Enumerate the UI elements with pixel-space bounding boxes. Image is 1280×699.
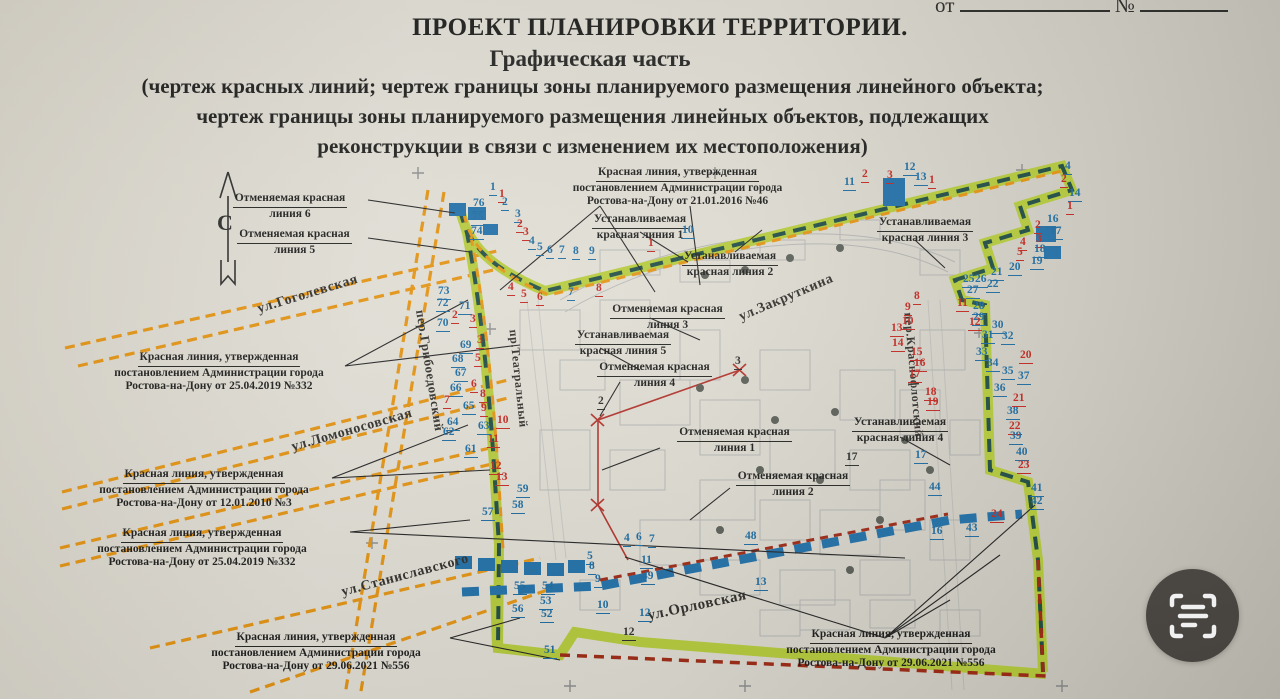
ref-point-number: 2 bbox=[1060, 174, 1068, 188]
ref-point-number: 22 bbox=[986, 279, 1000, 293]
ref-point-number: 65 bbox=[462, 401, 476, 415]
ref-point-number: 4 bbox=[623, 533, 631, 547]
ref-point-number: 9 bbox=[594, 574, 602, 588]
ref-point-number: 9 bbox=[904, 302, 912, 316]
ref-point-number: 10 bbox=[596, 600, 610, 614]
ref-point-number: 58 bbox=[511, 500, 525, 514]
ref-point-number: 3 bbox=[476, 335, 484, 349]
ref-point-number: 62 bbox=[442, 427, 456, 441]
ref-point-number: 6 bbox=[635, 532, 643, 546]
ref-point-number: 24 bbox=[990, 509, 1004, 523]
ref-point-number: 2 bbox=[451, 310, 459, 324]
ref-point-number: 21 bbox=[1012, 393, 1026, 407]
ref-point-number: 17 bbox=[908, 369, 922, 383]
ref-point-number: 12 bbox=[968, 317, 982, 331]
ref-point-number: 23 bbox=[1017, 460, 1031, 474]
ref-point-number: 2 bbox=[861, 169, 869, 183]
ref-point-number: 17 bbox=[845, 452, 859, 466]
ref-point-number: 9 bbox=[480, 403, 488, 417]
ref-point-number: 7 bbox=[648, 534, 656, 548]
ref-point-number: 16 bbox=[930, 526, 944, 540]
ref-point-number: 2 bbox=[501, 197, 509, 211]
ref-point-number: 48 bbox=[744, 531, 758, 545]
ref-point-number: 67 bbox=[454, 368, 468, 382]
ref-point-number: 5 bbox=[474, 353, 482, 367]
ref-point-number: 76 bbox=[472, 198, 486, 212]
ref-point-number: 43 bbox=[965, 523, 979, 537]
scan-button[interactable] bbox=[1146, 569, 1239, 662]
ref-point-number: 35 bbox=[1001, 366, 1015, 380]
ref-point-number: 39 bbox=[1009, 431, 1023, 445]
ref-point-number: 37 bbox=[1017, 371, 1031, 385]
ref-point-number: 13 bbox=[914, 172, 928, 186]
ref-point-number: 31 bbox=[981, 330, 995, 344]
ref-point-number: 8 bbox=[595, 283, 603, 297]
ref-point-number: 61 bbox=[464, 444, 478, 458]
ref-point-number: 10 bbox=[681, 225, 695, 239]
ref-point-number: 8 bbox=[588, 561, 596, 575]
ref-point-number: 32 bbox=[1001, 331, 1015, 345]
ref-number-layer: 7675747372712370693685676667658649631062… bbox=[0, 0, 1280, 699]
scan-text-icon bbox=[1167, 590, 1219, 642]
ref-point-number: 38 bbox=[1006, 406, 1020, 420]
ref-point-number: 2 bbox=[597, 396, 605, 410]
ref-point-number: 11 bbox=[640, 555, 653, 569]
ref-point-number: 12 bbox=[622, 627, 636, 641]
photo-of-planning-document: от № ПРОЕКТ ПЛАНИРОВКИ ТЕРРИТОРИИ. Графи… bbox=[0, 0, 1280, 699]
ref-point-number: 36 bbox=[993, 383, 1007, 397]
ref-point-number: 5 bbox=[520, 289, 528, 303]
ref-point-number: 20 bbox=[1008, 262, 1022, 276]
ref-point-number: 66 bbox=[449, 383, 463, 397]
ref-point-number: 1 bbox=[489, 182, 497, 196]
ref-point-number: 11 bbox=[956, 298, 969, 312]
ref-point-number: 4 bbox=[507, 282, 515, 296]
ref-point-number: 3 bbox=[734, 356, 742, 370]
ref-point-number: 13 bbox=[890, 323, 904, 337]
ref-point-number: 6 bbox=[546, 245, 554, 259]
ref-point-number: 9 bbox=[588, 246, 596, 260]
ref-point-number: 13 bbox=[495, 472, 509, 486]
ref-point-number: 55 bbox=[513, 581, 527, 595]
ref-point-number: 13 bbox=[754, 577, 768, 591]
ref-point-number: 11 bbox=[487, 434, 500, 448]
ref-point-number: 68 bbox=[451, 354, 465, 368]
ref-point-number: 3 bbox=[886, 170, 894, 184]
ref-point-number: 75 bbox=[471, 212, 485, 226]
ref-point-number: 10 bbox=[496, 415, 510, 429]
ref-point-number: 44 bbox=[928, 482, 942, 496]
ref-point-number: 7 bbox=[567, 287, 575, 301]
ref-point-number: 17 bbox=[914, 450, 928, 464]
ref-point-number: 20 bbox=[1019, 350, 1033, 364]
ref-point-number: 6 bbox=[470, 379, 478, 393]
ref-point-number: 8 bbox=[913, 291, 921, 305]
ref-point-number: 8 bbox=[479, 389, 487, 403]
ref-point-number: 57 bbox=[481, 507, 495, 521]
ref-point-number: 51 bbox=[543, 645, 557, 659]
ref-point-number: 49 bbox=[641, 571, 655, 585]
ref-point-number: 6 bbox=[536, 292, 544, 306]
ref-point-number: 27 bbox=[966, 285, 980, 299]
ref-point-number: 8 bbox=[572, 246, 580, 260]
ref-point-number: 14 bbox=[891, 338, 905, 352]
ref-point-number: 1 bbox=[1066, 201, 1074, 215]
ref-point-number: 2 bbox=[1034, 220, 1042, 234]
ref-point-number: 42 bbox=[1030, 496, 1044, 510]
ref-point-number: 19 bbox=[926, 397, 940, 411]
ref-point-number: 19 bbox=[1030, 256, 1044, 270]
ref-point-number: 5 bbox=[1016, 247, 1024, 261]
ref-point-number: 7 bbox=[443, 395, 451, 409]
ref-point-number: 69 bbox=[459, 340, 473, 354]
ref-point-number: 4 bbox=[528, 236, 536, 250]
ref-point-number: 70 bbox=[436, 318, 450, 332]
ref-point-number: 17 bbox=[1049, 226, 1063, 240]
ref-point-number: 52 bbox=[540, 609, 554, 623]
ref-point-number: 1 bbox=[928, 175, 936, 189]
ref-point-number: 7 bbox=[558, 245, 566, 259]
ref-point-number: 12 bbox=[638, 608, 652, 622]
ref-point-number: 3 bbox=[469, 314, 477, 328]
ref-point-number: 54 bbox=[541, 581, 555, 595]
ref-point-number: 1 bbox=[647, 238, 655, 252]
ref-point-number: 5 bbox=[536, 242, 544, 256]
ref-point-number: 56 bbox=[511, 604, 525, 618]
ref-point-number: 11 bbox=[843, 177, 856, 191]
ref-point-number: 72 bbox=[436, 298, 450, 312]
ref-point-number: 74 bbox=[470, 226, 484, 240]
ref-point-number: 59 bbox=[516, 484, 530, 498]
ref-point-number: 34 bbox=[986, 358, 1000, 372]
